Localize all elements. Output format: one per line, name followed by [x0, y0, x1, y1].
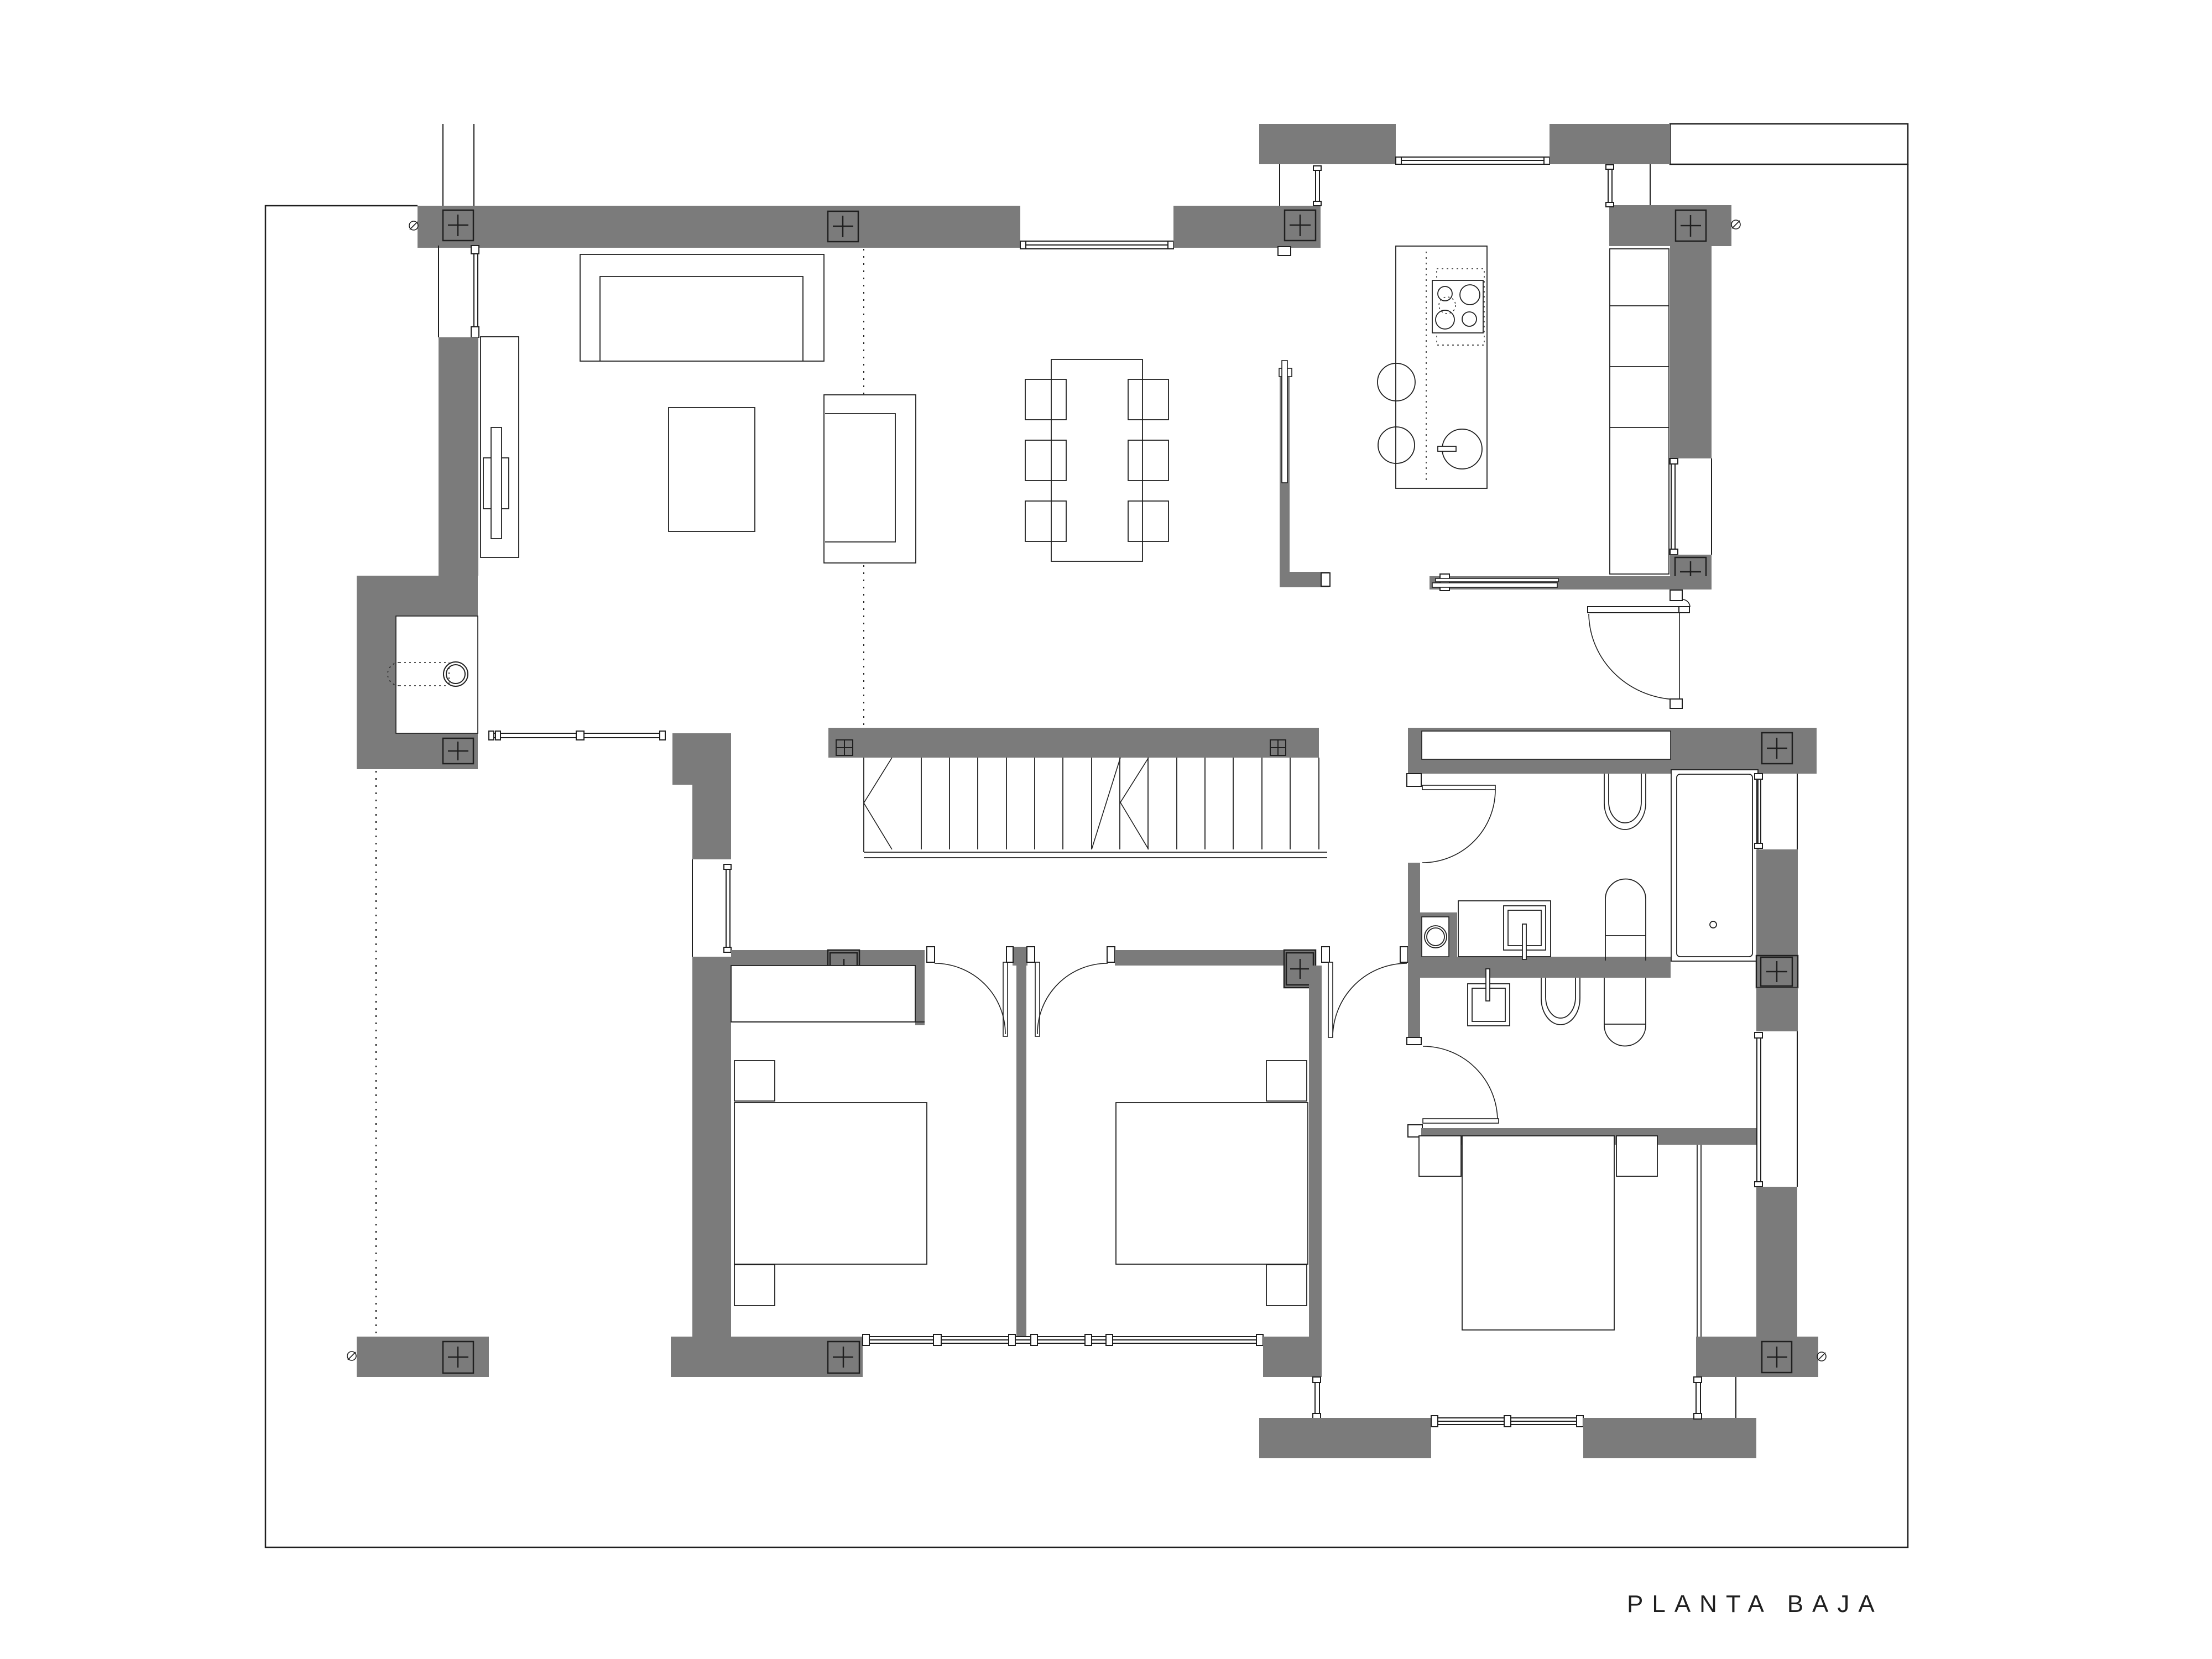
svg-text:PLANTA BAJA: PLANTA BAJA	[1627, 1590, 1884, 1618]
